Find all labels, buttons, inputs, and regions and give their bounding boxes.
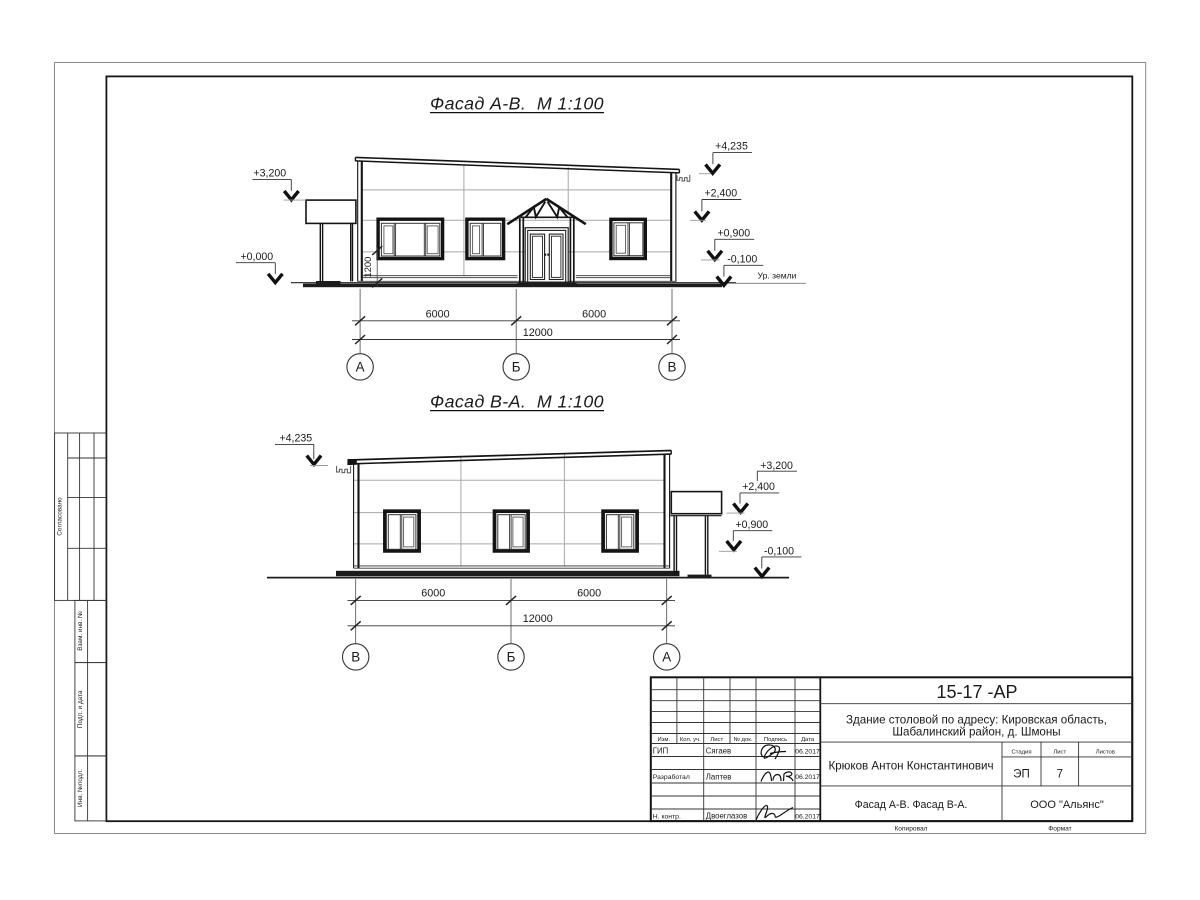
svg-text:Кол. уч.: Кол. уч. — [680, 737, 701, 743]
svg-text:12000: 12000 — [523, 327, 553, 339]
svg-text:Стадия: Стадия — [1011, 749, 1031, 755]
svg-text:6000: 6000 — [421, 588, 445, 600]
svg-text:-0,100: -0,100 — [764, 546, 794, 558]
svg-text:Б: Б — [512, 360, 521, 375]
svg-text:Фасад В-А. М 1:100: Фасад В-А. М 1:100 — [430, 391, 604, 411]
svg-text:+2,400: +2,400 — [742, 481, 775, 493]
svg-text:Инв. №подл.: Инв. №подл. — [77, 769, 84, 807]
svg-text:7: 7 — [1057, 769, 1063, 781]
svg-text:Взам. инв. №: Взам. инв. № — [77, 611, 84, 651]
svg-text:Листов: Листов — [1096, 749, 1115, 755]
svg-text:Согласовано: Согласовано — [57, 497, 64, 536]
svg-text:Подпись: Подпись — [764, 737, 787, 743]
svg-text:+3,200: +3,200 — [760, 460, 793, 472]
svg-text:Лист: Лист — [1053, 749, 1066, 755]
svg-text:В: В — [351, 650, 360, 665]
svg-text:-0,100: -0,100 — [727, 253, 757, 265]
svg-text:Б: Б — [507, 650, 516, 665]
svg-text:Лаптев: Лаптев — [706, 773, 732, 782]
svg-text:В: В — [668, 360, 677, 375]
svg-text:№ док.: № док. — [734, 736, 753, 743]
svg-text:+0,000: +0,000 — [240, 251, 273, 263]
svg-text:Формат: Формат — [1048, 826, 1071, 833]
svg-text:А: А — [356, 360, 365, 375]
svg-text:ООО "Альянс": ООО "Альянс" — [1030, 799, 1104, 811]
svg-text:Копировал: Копировал — [894, 826, 927, 833]
svg-text:+2,400: +2,400 — [704, 188, 737, 200]
svg-text:+3,200: +3,200 — [253, 168, 286, 180]
svg-text:Н. контр.: Н. контр. — [653, 813, 681, 820]
svg-text:1200: 1200 — [362, 257, 373, 278]
svg-text:+4,235: +4,235 — [279, 433, 312, 445]
svg-text:Разработал: Разработал — [653, 773, 690, 781]
svg-text:+0,900: +0,900 — [717, 227, 750, 239]
svg-text:А: А — [662, 650, 671, 665]
svg-text:06.2017: 06.2017 — [795, 813, 820, 820]
svg-text:Двоеглазов: Двоеглазов — [706, 812, 747, 821]
svg-text:Фасад А-В. Фасад В-А.: Фасад А-В. Фасад В-А. — [855, 799, 968, 811]
svg-text:12000: 12000 — [523, 613, 553, 625]
svg-text:6000: 6000 — [426, 308, 450, 320]
svg-text:Изм.: Изм. — [657, 737, 670, 743]
svg-text:15-17 -АР: 15-17 -АР — [936, 682, 1017, 702]
svg-text:Подп. и дата: Подп. и дата — [77, 690, 84, 728]
svg-text:06.2017: 06.2017 — [795, 774, 820, 781]
svg-text:06.2017: 06.2017 — [795, 748, 820, 755]
svg-text:+0,900: +0,900 — [735, 519, 768, 531]
svg-text:Крюков Антон Константинович: Крюков Антон Константинович — [828, 759, 993, 772]
svg-text:Фасад А-В. М 1:100: Фасад А-В. М 1:100 — [430, 93, 604, 113]
svg-text:Шабалинский район, д. Шмоны: Шабалинский район, д. Шмоны — [892, 726, 1060, 739]
svg-text:6000: 6000 — [582, 308, 606, 320]
svg-text:Здание столовой по адресу: Кир: Здание столовой по адресу: Кировская обл… — [846, 714, 1107, 727]
svg-text:Дата: Дата — [801, 737, 815, 743]
svg-text:ГИП: ГИП — [653, 747, 668, 756]
svg-text:Сягаев: Сягаев — [706, 747, 731, 756]
svg-text:+4,235: +4,235 — [715, 141, 748, 153]
svg-text:6000: 6000 — [577, 588, 601, 600]
svg-text:Лист: Лист — [710, 737, 723, 743]
svg-text:Ур. земли: Ур. земли — [758, 271, 797, 281]
svg-text:ЭП: ЭП — [1013, 769, 1030, 781]
